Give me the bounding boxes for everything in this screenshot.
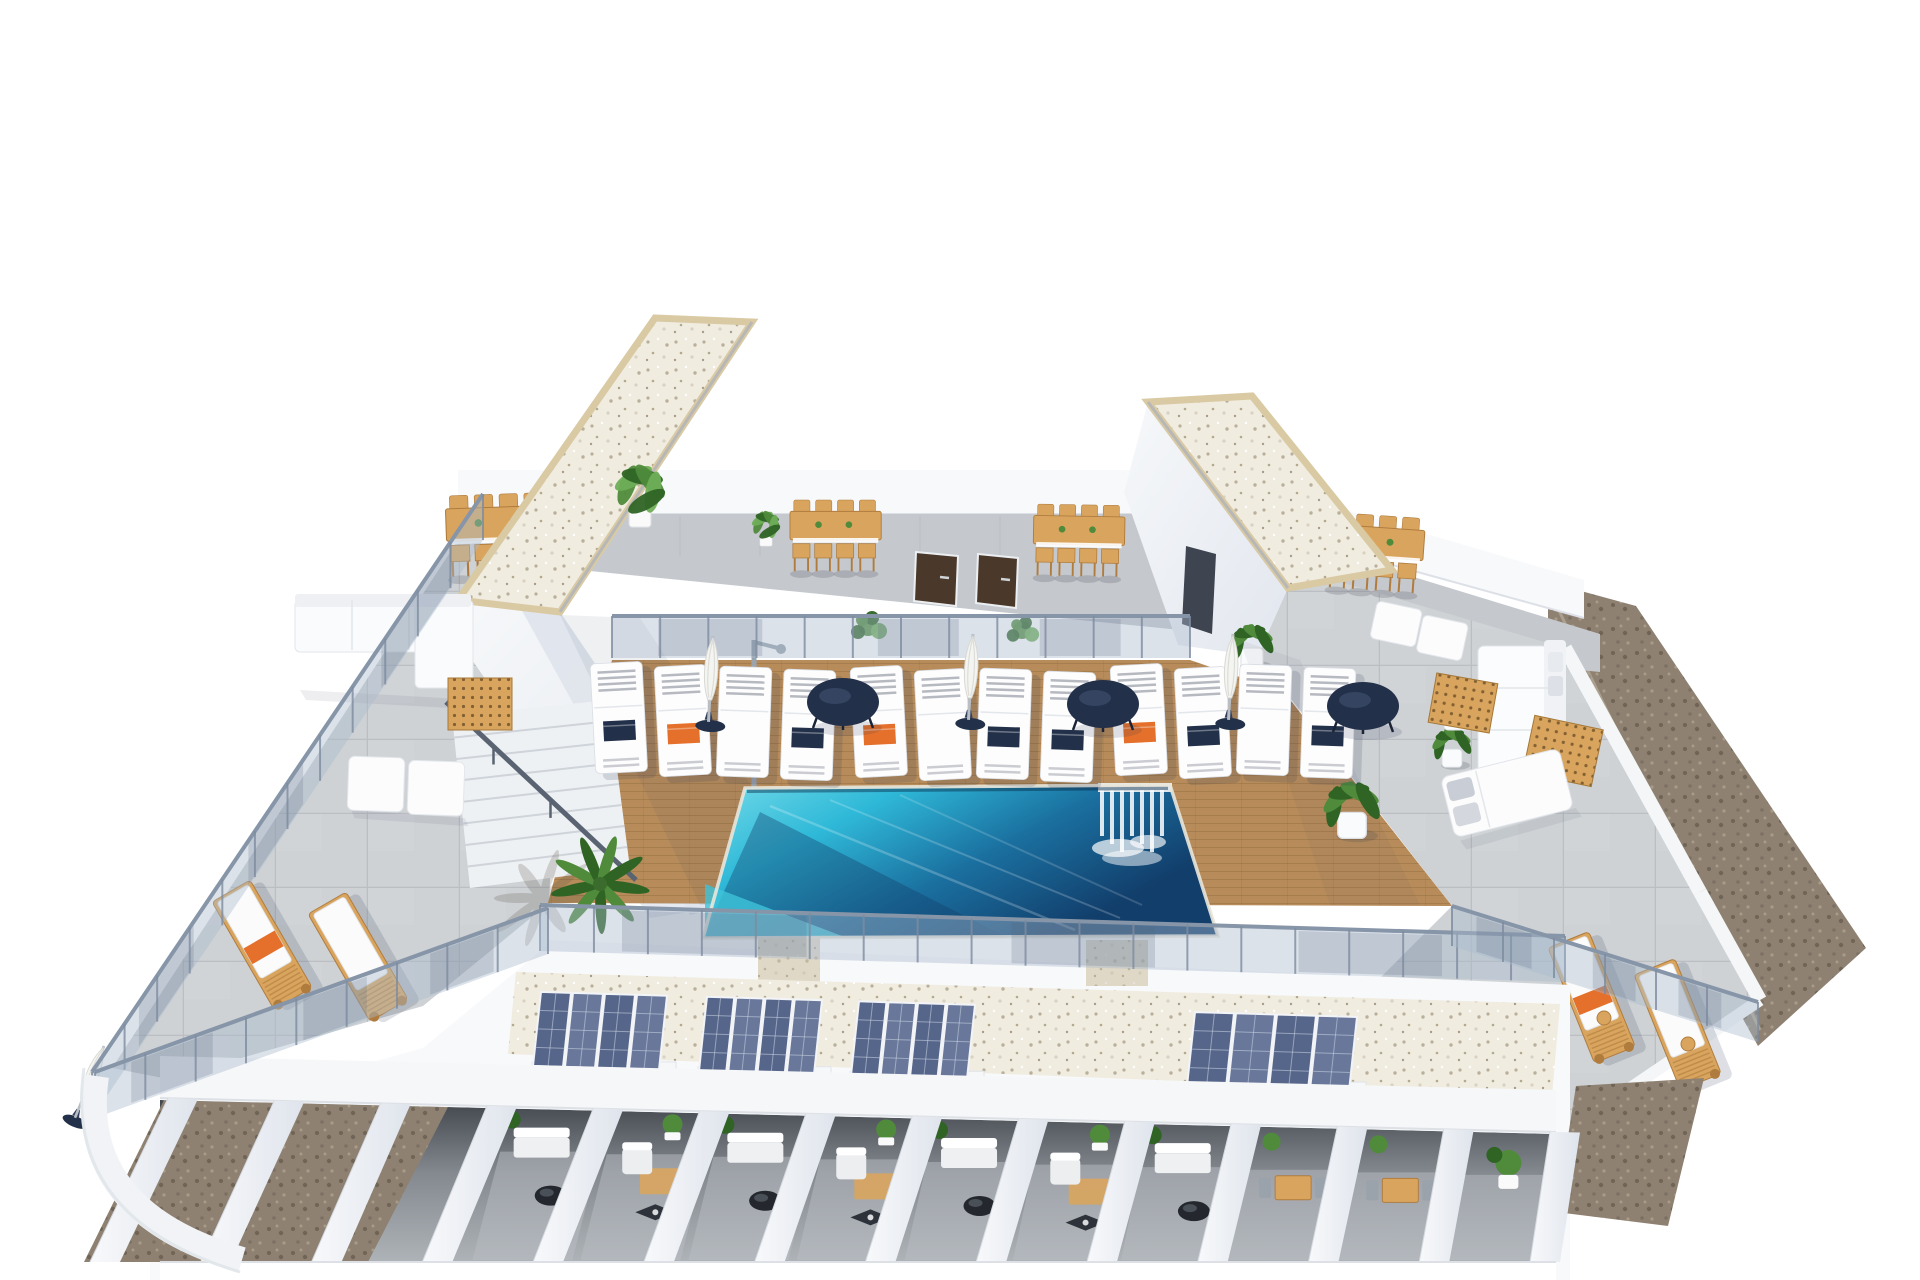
- patio-plant: [876, 1119, 896, 1139]
- towel: [667, 723, 700, 745]
- patio-armchair: [622, 1148, 652, 1174]
- rooftop-scene: Aerial 3D render - rooftop communal terr…: [0, 0, 1920, 1280]
- rolled-towel: [1681, 1037, 1695, 1051]
- towel: [1187, 725, 1220, 747]
- sun-lounger: [590, 661, 657, 781]
- solar-array: [698, 997, 831, 1076]
- patio-table: [1382, 1178, 1418, 1202]
- sun-lounger: [716, 666, 781, 785]
- solar-array: [532, 992, 676, 1071]
- glass-railing: [612, 616, 1190, 658]
- patio-sofa: [514, 1128, 570, 1138]
- patio-armchair: [836, 1153, 866, 1179]
- rolled-towel: [1597, 1011, 1611, 1025]
- sun-lounger: [976, 668, 1041, 787]
- patio-sofa: [1155, 1143, 1211, 1153]
- wood-vent-grate: [448, 678, 512, 730]
- patio-table: [1275, 1176, 1311, 1200]
- patio-plant: [1369, 1135, 1387, 1153]
- double-daybed: [347, 756, 471, 826]
- patio-chair: [1366, 1180, 1378, 1200]
- patio-plant: [663, 1114, 683, 1134]
- patio-armchair: [1050, 1159, 1080, 1185]
- solar-array: [850, 1001, 984, 1080]
- architectural-render: Aerial 3D render - rooftop communal terr…: [0, 0, 1920, 1280]
- pergola-layer: [84, 1056, 1704, 1280]
- towel: [603, 720, 636, 742]
- patio-chair: [1259, 1178, 1271, 1198]
- glass-railing-back: [612, 616, 1190, 658]
- towel: [987, 726, 1020, 747]
- patio-sofa: [727, 1133, 783, 1143]
- wood-vent-grate: [1428, 673, 1498, 733]
- sun-lounger: [1236, 664, 1301, 783]
- patio-plant: [1090, 1125, 1110, 1145]
- patio-plant: [1263, 1133, 1281, 1151]
- patio-sofa: [941, 1138, 997, 1148]
- solar-array: [1186, 1012, 1366, 1091]
